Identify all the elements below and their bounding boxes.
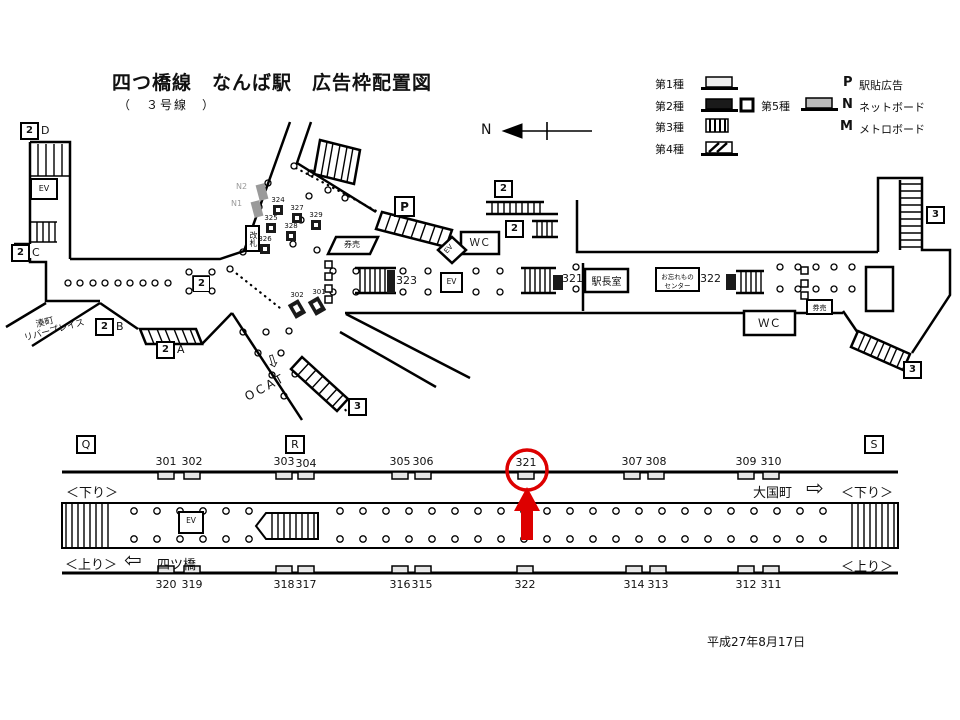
exit-2a-box: 2 bbox=[156, 341, 175, 359]
compass-north-label: N bbox=[481, 122, 491, 138]
legend-type3: 第3種 bbox=[655, 119, 684, 135]
pos-304: 304 bbox=[290, 457, 322, 470]
pos-317: 317 bbox=[290, 578, 322, 591]
legend-m-label: メトロボード bbox=[859, 121, 925, 137]
ad-323-label: 323 bbox=[396, 274, 417, 287]
ad-328-label: 328 bbox=[281, 222, 301, 230]
exit-2b-letter: B bbox=[116, 320, 124, 333]
legend-p-symbol: P bbox=[843, 75, 853, 90]
platform-section-q: Q bbox=[76, 435, 96, 454]
exit-2a-letter: A bbox=[177, 343, 185, 356]
exit-2d-box: 2 bbox=[20, 122, 39, 140]
revision-date: 平成27年8月17日 bbox=[707, 633, 805, 650]
ad-327-label: 327 bbox=[287, 204, 307, 212]
kiosk-right-label: 券売 bbox=[807, 303, 832, 313]
pos-322-platform: 322 bbox=[509, 578, 541, 591]
kiosk-center-label: 券売 bbox=[331, 239, 373, 250]
yotsubashi-arrow-icon: ⇦ bbox=[124, 550, 142, 571]
lost-found-line2: センター bbox=[656, 280, 699, 290]
legend-type4: 第4種 bbox=[655, 141, 684, 157]
netboard-n1-label: N1 bbox=[231, 199, 242, 208]
down-label-right: ＜下り＞ bbox=[841, 482, 893, 501]
ad-box-301 bbox=[308, 296, 326, 316]
concourse-rooms bbox=[31, 179, 893, 335]
daikokucho-arrow-icon: ⇨ bbox=[806, 478, 824, 499]
station-ad-layout-page: 四つ橋線 なんば駅 広告枠配置図 （ ３号線 ） 第1種 第2種 第3種 第4種… bbox=[0, 0, 960, 720]
exit-3-south-box: 3 bbox=[348, 398, 367, 416]
legend-m-symbol: M bbox=[840, 119, 853, 134]
legend-type2: 第2種 bbox=[655, 98, 684, 114]
pos-315: 315 bbox=[406, 578, 438, 591]
ad-325-label: 325 bbox=[261, 214, 281, 222]
ad-326-label: 326 bbox=[255, 235, 275, 243]
legend-type1: 第1種 bbox=[655, 76, 684, 92]
legend-type5: 第5種 bbox=[761, 98, 790, 114]
up-label-right: ＜上り＞ bbox=[841, 556, 893, 575]
legend-n-label: ネットボード bbox=[859, 99, 925, 115]
ad-301-label: 301 bbox=[305, 288, 333, 296]
page-subtitle: （ ３号線 ） bbox=[118, 96, 216, 113]
platform-section-r: R bbox=[285, 435, 305, 454]
exit-2c-box: 2 bbox=[11, 244, 30, 262]
pos-311: 311 bbox=[755, 578, 787, 591]
legend-n-symbol: N bbox=[842, 97, 853, 112]
exit-2d-letter: D bbox=[41, 124, 49, 137]
exit-2-concourse-box: 2 bbox=[193, 276, 210, 292]
legend-p-label: 駅貼広告 bbox=[859, 77, 903, 93]
pos-308: 308 bbox=[640, 455, 672, 468]
netboard-n2-label: N2 bbox=[236, 182, 247, 191]
page-title: 四つ橋線 なんば駅 広告枠配置図 bbox=[112, 68, 432, 95]
ad-box-302 bbox=[288, 299, 306, 319]
exit-3-east-top-box: 3 bbox=[926, 206, 945, 224]
pos-302: 302 bbox=[176, 455, 208, 468]
exit-2b-box: 2 bbox=[95, 318, 114, 336]
ad-322-label: 322 bbox=[700, 272, 721, 285]
compass-arrow bbox=[503, 122, 592, 140]
ad-321-label: 321 bbox=[562, 272, 583, 285]
station-master-label: 駅長室 bbox=[585, 273, 628, 288]
pos-306: 306 bbox=[407, 455, 439, 468]
pos-321-platform: 321 bbox=[510, 456, 542, 469]
ev-center-label: EV bbox=[441, 277, 462, 286]
daikokucho-label: 大国町 bbox=[753, 482, 792, 501]
platform-section-s: S bbox=[864, 435, 884, 454]
down-label-left: ＜下り＞ bbox=[66, 482, 118, 501]
pos-319: 319 bbox=[176, 578, 208, 591]
wc-right-label: ＷＣ bbox=[744, 315, 795, 331]
p-box-label: P bbox=[395, 200, 414, 214]
legend-icons bbox=[701, 77, 838, 155]
ev-left-label: EV bbox=[31, 184, 57, 193]
exit-2c-letter: C bbox=[32, 246, 40, 259]
exit-2-north-lower-box: 2 bbox=[505, 220, 524, 238]
wc-top-label: ＷＣ bbox=[461, 235, 499, 250]
ad-324-label: 324 bbox=[268, 196, 288, 204]
exit-3-east-bottom-box: 3 bbox=[903, 361, 922, 379]
pos-310: 310 bbox=[755, 455, 787, 468]
exit-2-north-upper-box: 2 bbox=[494, 180, 513, 198]
platform-ev-label: EV bbox=[179, 516, 203, 525]
ad-329-label: 329 bbox=[306, 211, 326, 219]
yotsubashi-label: 四ツ橋 bbox=[157, 554, 196, 573]
pos-313: 313 bbox=[642, 578, 674, 591]
up-label-left: ＜上り＞ bbox=[65, 554, 117, 573]
